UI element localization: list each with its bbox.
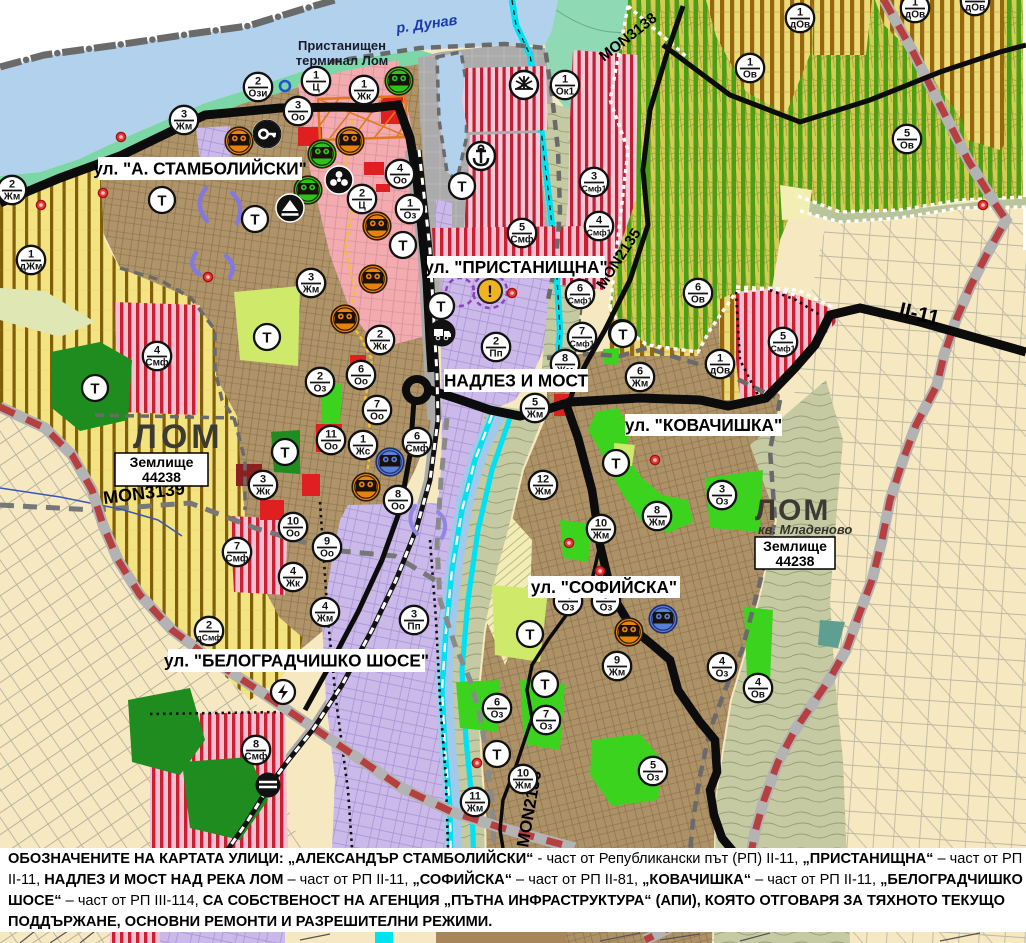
svg-text:5: 5 bbox=[780, 331, 786, 343]
svg-text:Жм: Жм bbox=[3, 192, 20, 203]
svg-text:T: T bbox=[280, 445, 289, 462]
svg-text:Оо: Оо bbox=[354, 377, 368, 388]
svg-text:кв. Младеново: кв. Младеново bbox=[758, 522, 852, 537]
svg-text:Смф: Смф bbox=[510, 234, 533, 246]
svg-text:2: 2 bbox=[206, 620, 212, 632]
svg-text:3: 3 bbox=[411, 609, 417, 621]
svg-text:T: T bbox=[492, 747, 501, 764]
svg-text:Оо: Оо bbox=[286, 529, 300, 540]
svg-text:8: 8 bbox=[253, 739, 259, 751]
svg-text:6: 6 bbox=[577, 283, 583, 295]
svg-text:T: T bbox=[525, 627, 534, 644]
svg-text:T: T bbox=[457, 179, 466, 196]
svg-text:Пристанищен: Пристанищен bbox=[298, 38, 386, 53]
svg-text:11: 11 bbox=[325, 429, 337, 441]
svg-text:2: 2 bbox=[317, 371, 323, 383]
svg-text:Жк: Жк bbox=[356, 92, 372, 103]
svg-text:Ок1: Ок1 bbox=[556, 87, 575, 98]
svg-text:дОв: дОв bbox=[905, 10, 925, 21]
svg-text:6: 6 bbox=[695, 282, 701, 294]
svg-text:Оо: Оо bbox=[291, 113, 305, 124]
svg-text:дСмф: дСмф bbox=[196, 633, 222, 643]
svg-text:Жк: Жк bbox=[285, 579, 301, 590]
svg-text:1: 1 bbox=[797, 7, 803, 19]
svg-text:1: 1 bbox=[360, 434, 366, 446]
svg-text:10: 10 bbox=[595, 518, 607, 530]
svg-text:8: 8 bbox=[562, 353, 568, 365]
svg-text:1: 1 bbox=[407, 198, 413, 210]
svg-text:дОв: дОв bbox=[965, 3, 985, 14]
svg-text:9: 9 bbox=[614, 655, 620, 667]
svg-text:3: 3 bbox=[295, 100, 301, 112]
svg-text:10: 10 bbox=[287, 516, 299, 528]
svg-text:Жм: Жм bbox=[316, 614, 333, 625]
svg-text:4: 4 bbox=[755, 677, 762, 689]
svg-text:Оз: Оз bbox=[647, 773, 660, 784]
svg-text:Смф1: Смф1 bbox=[587, 228, 612, 238]
svg-text:4: 4 bbox=[719, 656, 726, 668]
svg-text:Жм: Жм bbox=[302, 285, 319, 296]
svg-text:Пп: Пп bbox=[489, 349, 502, 360]
svg-text:Оо: Оо bbox=[370, 412, 384, 423]
svg-text:Жм: Жм bbox=[534, 487, 551, 498]
svg-text:1: 1 bbox=[562, 74, 568, 86]
svg-text:Ов: Ов bbox=[691, 295, 705, 306]
svg-text:ЛОМ: ЛОМ bbox=[133, 418, 224, 456]
svg-text:7: 7 bbox=[579, 326, 585, 338]
svg-text:Оз: Оз bbox=[600, 603, 613, 614]
svg-text:Ози: Ози bbox=[249, 89, 268, 100]
svg-text:3: 3 bbox=[260, 474, 266, 486]
svg-text:Оз: Оз bbox=[540, 722, 553, 733]
svg-text:T: T bbox=[157, 193, 166, 210]
svg-text:Оз: Оз bbox=[314, 384, 327, 395]
svg-text:7: 7 bbox=[234, 541, 240, 553]
svg-text:Жк: Жк bbox=[372, 342, 388, 353]
svg-text:ул. "КОВАЧИШКА": ул. "КОВАЧИШКА" bbox=[625, 415, 782, 435]
svg-text:T: T bbox=[398, 238, 407, 255]
svg-text:6: 6 bbox=[414, 431, 420, 443]
svg-text:Жм: Жм bbox=[514, 781, 531, 792]
svg-text:ул. "ПРИСТАНИЩНА": ул. "ПРИСТАНИЩНА" bbox=[424, 257, 607, 277]
svg-text:Смф: Смф bbox=[225, 553, 248, 565]
svg-text:44238: 44238 bbox=[142, 469, 181, 485]
svg-text:Смф: Смф bbox=[244, 751, 267, 763]
svg-text:1: 1 bbox=[313, 70, 319, 82]
svg-text:9: 9 bbox=[324, 536, 330, 548]
svg-text:Смф: Смф bbox=[145, 357, 168, 369]
svg-text:1: 1 bbox=[747, 57, 753, 69]
svg-text:3: 3 bbox=[308, 272, 314, 284]
svg-text:Смф: Смф bbox=[405, 443, 428, 455]
svg-text:4: 4 bbox=[154, 345, 161, 357]
svg-text:Жм: Жм bbox=[466, 804, 483, 815]
svg-text:НАДЛЕЗ И МОСТ: НАДЛЕЗ И МОСТ bbox=[444, 371, 589, 391]
svg-text:ул. "БЕЛОГРАДЧИШКО ШОСЕ": ул. "БЕЛОГРАДЧИШКО ШОСЕ" bbox=[164, 651, 429, 671]
svg-text:Смф1: Смф1 bbox=[771, 344, 796, 354]
svg-text:T: T bbox=[262, 330, 271, 347]
svg-text:Ов: Ов bbox=[743, 70, 757, 81]
svg-text:Ц: Ц bbox=[312, 83, 320, 94]
svg-text:5: 5 bbox=[532, 397, 538, 409]
svg-text:Землище: Землище bbox=[763, 538, 827, 554]
svg-text:T: T bbox=[90, 381, 99, 398]
svg-text:5: 5 bbox=[519, 222, 525, 234]
svg-text:T: T bbox=[611, 456, 620, 473]
svg-text:терминал Лом: терминал Лом bbox=[296, 53, 388, 68]
svg-text:4: 4 bbox=[290, 566, 297, 578]
svg-text:6: 6 bbox=[637, 366, 643, 378]
svg-text:Жс: Жс bbox=[355, 447, 371, 458]
svg-text:дОв: дОв bbox=[710, 366, 730, 377]
svg-text:8: 8 bbox=[395, 489, 401, 501]
svg-text:6: 6 bbox=[358, 364, 364, 376]
svg-text:2: 2 bbox=[359, 188, 365, 200]
svg-text:6: 6 bbox=[494, 697, 500, 709]
svg-text:3: 3 bbox=[591, 171, 597, 183]
svg-text:1: 1 bbox=[717, 353, 723, 365]
svg-text:Землище: Землище bbox=[130, 454, 194, 470]
svg-text:2: 2 bbox=[9, 179, 15, 191]
svg-text:Оз: Оз bbox=[491, 710, 504, 721]
svg-text:ул. "СОФИЙСКА": ул. "СОФИЙСКА" bbox=[531, 577, 677, 597]
svg-text:дОв: дОв bbox=[790, 20, 810, 31]
svg-text:!: ! bbox=[487, 282, 493, 301]
svg-text:Оз: Оз bbox=[716, 497, 729, 508]
svg-text:11: 11 bbox=[469, 791, 481, 803]
svg-text:Оз: Оз bbox=[716, 669, 729, 680]
svg-text:4: 4 bbox=[397, 163, 404, 175]
svg-text:Оо: Оо bbox=[324, 442, 338, 453]
svg-text:Пп: Пп bbox=[407, 622, 420, 633]
svg-text:Оо: Оо bbox=[391, 502, 405, 513]
svg-text:7: 7 bbox=[543, 709, 549, 721]
svg-text:Жм: Жм bbox=[526, 410, 543, 421]
svg-text:Смф1: Смф1 bbox=[570, 339, 595, 349]
svg-text:T: T bbox=[436, 299, 445, 316]
svg-text:4: 4 bbox=[322, 601, 329, 613]
svg-text:3: 3 bbox=[719, 484, 725, 496]
svg-text:10: 10 bbox=[517, 768, 529, 780]
svg-text:1: 1 bbox=[361, 79, 367, 91]
svg-text:3: 3 bbox=[181, 109, 187, 121]
svg-text:Жк: Жк bbox=[255, 487, 271, 498]
svg-text:Смф1: Смф1 bbox=[568, 296, 593, 306]
svg-text:7: 7 bbox=[374, 399, 380, 411]
svg-text:5: 5 bbox=[904, 128, 910, 140]
svg-text:5: 5 bbox=[650, 760, 656, 772]
svg-text:Смф1: Смф1 bbox=[582, 184, 607, 194]
svg-text:2: 2 bbox=[255, 76, 261, 88]
svg-text:Ц: Ц bbox=[358, 201, 366, 212]
svg-text:12: 12 bbox=[537, 474, 549, 486]
svg-text:2: 2 bbox=[493, 336, 499, 348]
svg-text:8: 8 bbox=[654, 505, 660, 517]
svg-text:Оз: Оз bbox=[404, 211, 417, 222]
svg-text:1: 1 bbox=[912, 0, 918, 9]
svg-text:Жм: Жм bbox=[608, 668, 625, 679]
svg-text:дЖм: дЖм bbox=[20, 262, 43, 273]
svg-text:Жм: Жм bbox=[631, 379, 648, 390]
svg-text:Ов: Ов bbox=[751, 690, 765, 701]
svg-text:44238: 44238 bbox=[776, 553, 815, 569]
svg-text:Жм: Жм bbox=[175, 122, 192, 133]
svg-text:4: 4 bbox=[596, 215, 603, 227]
svg-text:1: 1 bbox=[28, 249, 34, 261]
svg-text:Жм: Жм bbox=[648, 518, 665, 529]
svg-text:Жм: Жм bbox=[592, 531, 609, 542]
svg-text:T: T bbox=[540, 677, 549, 694]
svg-text:Оо: Оо bbox=[320, 549, 334, 560]
svg-text:Ов: Ов bbox=[900, 141, 914, 152]
svg-text:Оз: Оз bbox=[562, 603, 575, 614]
svg-text:T: T bbox=[250, 212, 259, 229]
svg-text:Оо: Оо bbox=[393, 176, 407, 187]
svg-text:ул. "А. СТАМБОЛИЙСКИ": ул. "А. СТАМБОЛИЙСКИ" bbox=[93, 159, 307, 179]
svg-text:2: 2 bbox=[377, 329, 383, 341]
svg-text:T: T bbox=[618, 327, 627, 344]
